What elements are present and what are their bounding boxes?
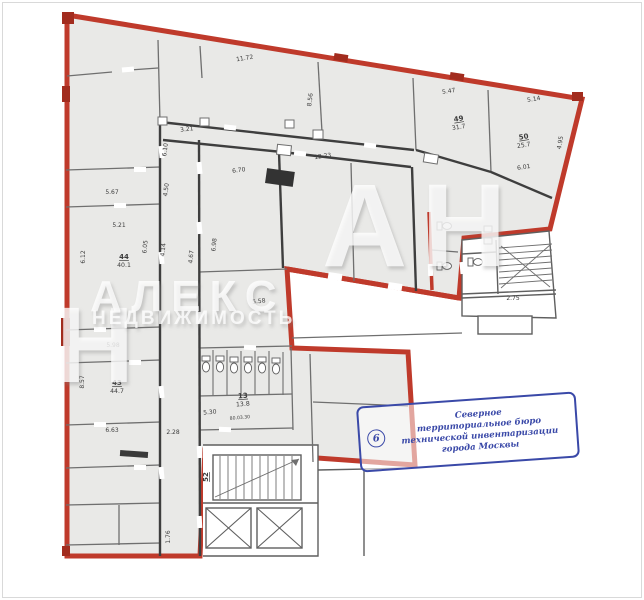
stamp-text: Северное территориальное бюро техническо… [389, 403, 571, 460]
dim-label-5-98: 5.98 [106, 342, 120, 349]
dim-label-1-76: 1.76 [165, 530, 172, 544]
room-label-49: 49 [453, 114, 464, 123]
dim-label-5-67: 5.67 [105, 189, 119, 196]
dim-label-5-58: 5.58 [252, 297, 266, 305]
dim-label-40-1: 40.1 [117, 262, 131, 269]
south-corridor [292, 333, 462, 338]
dim-label-6-12: 6.12 [80, 250, 87, 264]
room-label-43: 43 [112, 379, 122, 387]
dim-label-4-67: 4.67 [187, 250, 195, 264]
dim-label-2-28: 2.28 [166, 429, 180, 436]
dim-label-6-98: 6.98 [210, 238, 218, 252]
dim-label-5-30: 5.30 [203, 408, 217, 416]
room-label-50: 50 [518, 132, 529, 141]
dim-label-44-7: 44.7 [110, 388, 124, 395]
floor-plan-page: 11.725.475.148.566.014.953.2112.236.706.… [0, 0, 644, 600]
dim-label-13-8: 13.8 [236, 401, 250, 409]
floor-plan-drawing: 11.725.475.148.566.014.953.2112.236.706.… [0, 0, 644, 600]
dim-label-2-75: 2.75 [506, 295, 520, 302]
dim-label-8-57: 8.57 [79, 375, 86, 389]
room-label-44: 44 [119, 253, 129, 261]
dim-label-6-63: 6.63 [105, 427, 119, 434]
dim-label-5-21: 5.21 [112, 222, 126, 229]
right-stairwell-annex [462, 231, 556, 334]
dim-label-4-14: 4.14 [159, 243, 167, 257]
dim-label-6-05: 6.05 [141, 240, 149, 254]
stamp-number: 6 [367, 429, 386, 448]
room-label-52: 52 [202, 472, 210, 482]
room-label-13: 13 [238, 392, 248, 401]
